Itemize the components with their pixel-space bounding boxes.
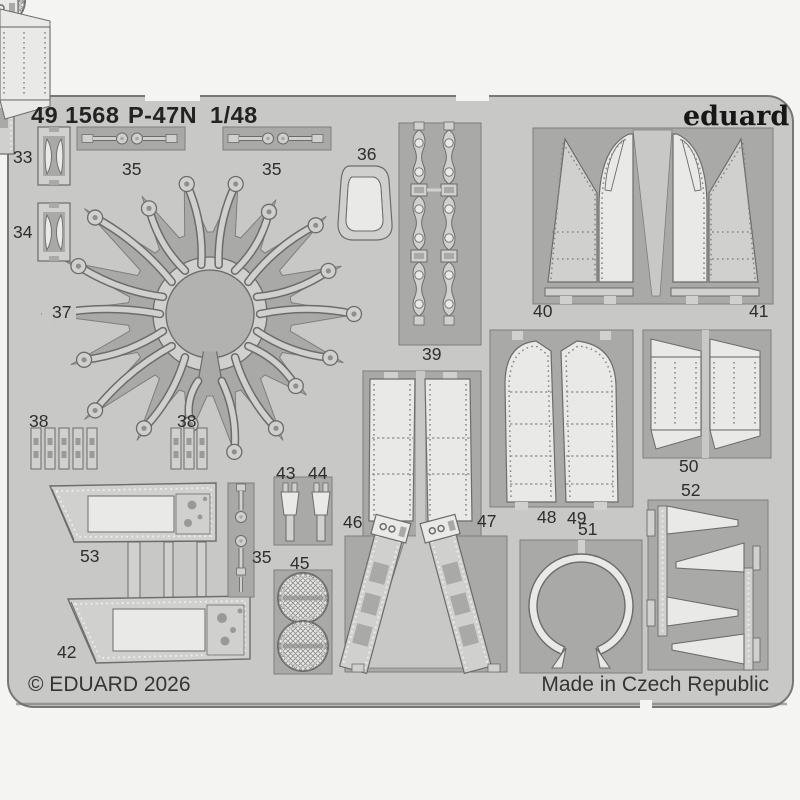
lead-terminal-hole (76, 264, 81, 269)
edge-notch (640, 700, 652, 708)
lead-terminal-hole (81, 357, 86, 362)
part-label-40: 40 (533, 301, 553, 321)
lead-terminal-hole (146, 206, 151, 211)
lead-terminal-hole (233, 181, 238, 186)
part-label-47: 47 (477, 511, 496, 531)
engine-hub (167, 271, 253, 357)
part-label-35: 35 (262, 159, 281, 179)
part-51-ring (520, 540, 642, 673)
part-label-42: 42 (57, 642, 76, 662)
part-label-37: 37 (52, 302, 71, 322)
part-49-cover (561, 341, 618, 502)
part-39-links (399, 122, 481, 345)
origin-text: Made in Czech Republic (541, 673, 769, 696)
part-label-33: 33 (13, 147, 32, 167)
part-33-blade-frame (38, 127, 70, 185)
part-46-panel (369, 379, 415, 521)
lead-terminal-hole (184, 181, 189, 186)
lead-terminal-hole (92, 408, 97, 413)
lead-terminal-hole (351, 311, 356, 316)
product-name: P-47N (128, 102, 197, 128)
photoetch-sheet-image: 49 1568 P-47N 1/48 eduard © EDUARD 2026 … (0, 0, 800, 800)
part-label-38: 38 (177, 411, 196, 431)
part-35-strip-vertical (228, 483, 254, 597)
edge-notch (456, 92, 489, 101)
part-36-mesh-screen (338, 166, 392, 240)
scale-label: 1/48 (210, 102, 258, 128)
lead-terminal-hole (326, 268, 331, 273)
lead-terminal-hole (273, 426, 278, 431)
lead-terminal-hole (266, 209, 271, 214)
part-label-35: 35 (252, 547, 271, 567)
part-42-bay-door (68, 596, 250, 663)
part-label-53: 53 (80, 546, 99, 566)
part-label-35: 35 (122, 159, 141, 179)
part-label-45: 45 (290, 553, 309, 573)
part-label-38: 38 (29, 411, 48, 431)
part-label-44: 44 (308, 463, 328, 483)
catalog-number: 49 1568 (31, 102, 119, 128)
lead-terminal-hole (293, 383, 298, 388)
parts-48-49-bay-covers (490, 330, 633, 510)
copyright-text: © EDUARD 2026 (28, 673, 191, 696)
part-label-52: 52 (681, 480, 700, 500)
edge-notch (145, 92, 200, 101)
brand-logo: eduard (683, 101, 789, 132)
part-48-cover (505, 341, 556, 502)
part-label-36: 36 (357, 144, 376, 164)
lead-terminal-hole (313, 223, 318, 228)
part-label-41: 41 (749, 301, 768, 321)
part-34-blade-frame (38, 203, 70, 261)
part-label-51: 51 (578, 519, 597, 539)
part-label-50: 50 (679, 456, 699, 476)
part-35-strip (223, 127, 331, 150)
fret-canvas: 49 1568 P-47N 1/48 eduard © EDUARD 2026 … (0, 0, 800, 800)
lead-terminal-hole (141, 426, 146, 431)
part-label-46: 46 (343, 512, 362, 532)
part-35-strip (77, 127, 185, 150)
part-label-34: 34 (13, 222, 33, 242)
part-47-panel (425, 379, 472, 521)
part-label-43: 43 (276, 463, 295, 483)
mesh-texture (346, 177, 383, 231)
lead-terminal-hole (92, 215, 97, 220)
parts-40-41-cowl-panels (533, 128, 773, 304)
part-label-48: 48 (537, 507, 556, 527)
lead-terminal-hole (328, 355, 333, 360)
lead-terminal-hole (232, 449, 237, 454)
part-label-39: 39 (422, 344, 441, 364)
part-52-fairings (647, 500, 768, 670)
